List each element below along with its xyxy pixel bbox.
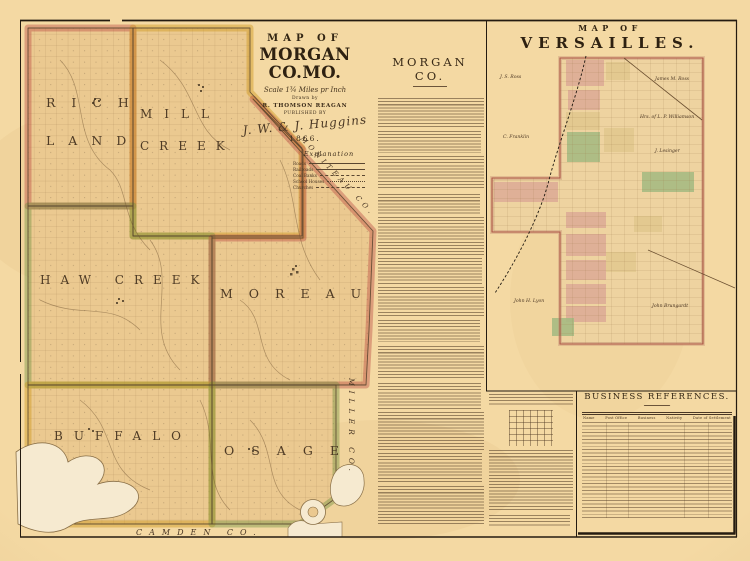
paragraph bbox=[378, 287, 484, 317]
railroad-symbol bbox=[316, 169, 365, 170]
paragraph bbox=[378, 194, 480, 214]
church-symbol bbox=[316, 187, 365, 188]
owner-label: John Brungardt bbox=[651, 303, 688, 309]
label-osage: OSAGE bbox=[224, 443, 356, 458]
table-rows bbox=[582, 422, 732, 520]
versailles-title-name: VERSAILLES. bbox=[505, 34, 715, 52]
owner-label: James M. Ross bbox=[654, 76, 690, 82]
heading-rule bbox=[413, 86, 447, 87]
column-rule bbox=[606, 423, 607, 518]
notes-column bbox=[489, 394, 573, 527]
history-column-text bbox=[378, 98, 484, 526]
label-buffalo: BUFFALO bbox=[54, 429, 192, 443]
business-references: BUSINESS REFERENCES. Name Post Office Bu… bbox=[579, 392, 735, 520]
paragraph bbox=[489, 450, 573, 512]
owner-label: Hrs. of L. P. Williamson bbox=[639, 114, 694, 120]
label-hawcreek: HAW CREEK bbox=[40, 273, 210, 287]
paragraph bbox=[378, 453, 482, 483]
history-column-heading: MORGAN CO. bbox=[378, 55, 482, 87]
morgan-title-scale: Scale 1¾ Miles pr Inch bbox=[232, 86, 378, 94]
table-header-row: Name Post Office Business Nativity Date … bbox=[582, 415, 732, 421]
explanation-item: Roads bbox=[293, 161, 306, 166]
label-millcreek-2: CREEK bbox=[140, 139, 235, 153]
owner-label: John H. Lyon bbox=[513, 298, 544, 304]
explanation-item: Churches bbox=[293, 185, 313, 190]
owner-label: J. Lesinger bbox=[654, 148, 681, 154]
morgan-title-name: MORGAN CO.MO. bbox=[232, 46, 378, 84]
morgan-drawn-by: Drawn by bbox=[232, 96, 378, 101]
owner-label: J. S. Ross bbox=[499, 74, 522, 80]
paragraph bbox=[489, 515, 570, 527]
column-header: Business bbox=[638, 416, 656, 420]
paragraph bbox=[378, 258, 482, 284]
paragraph bbox=[378, 346, 484, 380]
column-header: Post Office bbox=[605, 416, 627, 420]
paragraph bbox=[378, 98, 484, 128]
column-rule bbox=[708, 423, 709, 518]
column-header: Name bbox=[583, 416, 595, 420]
label-richland-1: RICH bbox=[46, 95, 145, 110]
antique-map-sheet: RICH LAND MILL CREEK HAW CREEK MOREAU BU… bbox=[0, 0, 750, 561]
morgan-title-kicker: MAP OF bbox=[232, 33, 378, 45]
morgan-author: R. THOMSON REAGAN bbox=[232, 103, 378, 109]
versailles-title-block: MAP OF VERSAILLES. bbox=[505, 23, 715, 52]
business-references-heading: BUSINESS REFERENCES. bbox=[579, 392, 735, 402]
label-millcreek-1: MILL bbox=[140, 107, 221, 121]
label-richland-2: LAND bbox=[46, 133, 140, 148]
explanation-item: School Houses bbox=[293, 179, 324, 184]
owner-label: C. Franklin bbox=[503, 134, 529, 140]
paragraph bbox=[378, 156, 484, 190]
paragraph bbox=[378, 217, 484, 255]
school-symbol bbox=[327, 181, 365, 182]
flourish bbox=[644, 405, 671, 406]
explanation-item: Railroads bbox=[293, 167, 313, 172]
explanation-legend: Explanation Roads Railroads Coal Banks S… bbox=[293, 150, 365, 190]
column-rule bbox=[628, 423, 629, 518]
paragraph bbox=[378, 320, 480, 342]
paragraph bbox=[378, 412, 484, 450]
explanation-item: Coal Banks bbox=[293, 173, 317, 178]
label-camden-co: CAMDEN CO. bbox=[136, 528, 263, 537]
column-header: Nativity bbox=[666, 416, 682, 420]
section-numbering-diagram bbox=[509, 410, 553, 446]
versailles-plat: J. S. Ross C. Franklin James M. Ross Hrs… bbox=[492, 56, 735, 344]
label-moreau: MOREAU bbox=[220, 286, 377, 301]
label-miller-co: MILLER CO. bbox=[347, 377, 356, 476]
morgan-title-block: MAP OF MORGAN CO.MO. Scale 1¾ Miles pr I… bbox=[232, 33, 378, 144]
column-header: Date of Settlement bbox=[693, 416, 731, 420]
paragraph bbox=[378, 486, 484, 526]
paragraph bbox=[378, 383, 481, 409]
history-column-title: MORGAN CO. bbox=[378, 55, 482, 83]
versailles-title-kicker: MAP OF bbox=[505, 23, 715, 33]
paragraph bbox=[489, 394, 573, 406]
coal-symbol bbox=[320, 175, 365, 176]
paragraph bbox=[378, 131, 481, 153]
column-rule bbox=[684, 423, 685, 518]
road-symbol bbox=[309, 163, 365, 164]
business-references-table: Name Post Office Business Nativity Date … bbox=[582, 412, 732, 520]
explanation-title: Explanation bbox=[293, 150, 365, 158]
